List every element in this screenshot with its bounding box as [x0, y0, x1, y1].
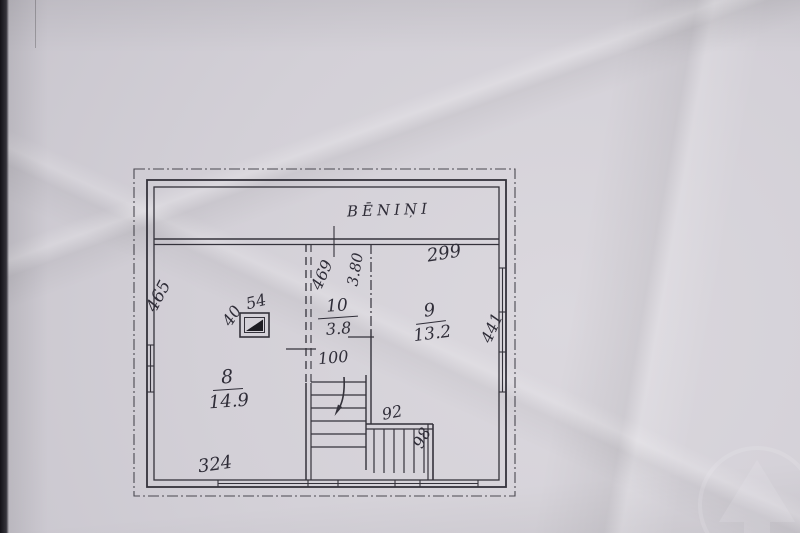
dim-bottom-wall: 324 — [197, 454, 234, 477]
dim-stairwell-width: 100 — [317, 349, 349, 368]
dim-chimney-height: 54 — [244, 292, 268, 312]
room-area: 3.8 — [318, 317, 359, 339]
room-label-9: 9 13.2 — [410, 300, 453, 345]
room-number: 10 — [317, 297, 358, 320]
room-label-10: 10 3.8 — [317, 297, 359, 339]
dim-landing-width: 92 — [381, 403, 404, 423]
stair-treads — [311, 382, 366, 447]
paper-crease-line — [35, 0, 36, 48]
attic-title: BĒNIŅI — [347, 202, 432, 220]
room-number: 9 — [414, 300, 446, 324]
room-area: 14.9 — [208, 389, 249, 413]
corridor-left-partition — [306, 244, 311, 383]
floor-plan-drawing — [0, 0, 800, 533]
stairwell-walls — [306, 375, 366, 480]
room-number: 8 — [212, 367, 244, 391]
paper-edge-shadow — [0, 0, 9, 533]
watermark-logo — [700, 448, 800, 533]
chimney-symbol — [240, 313, 269, 337]
stair-direction-arrow — [335, 377, 345, 416]
window-bottom-wall — [218, 480, 478, 487]
floor-plan-photo: BĒNIŅI 465 40 54 469 3.80 299 441 100 92… — [0, 0, 800, 533]
room-label-8: 8 14.9 — [207, 367, 250, 413]
window-left-wall — [147, 345, 154, 392]
